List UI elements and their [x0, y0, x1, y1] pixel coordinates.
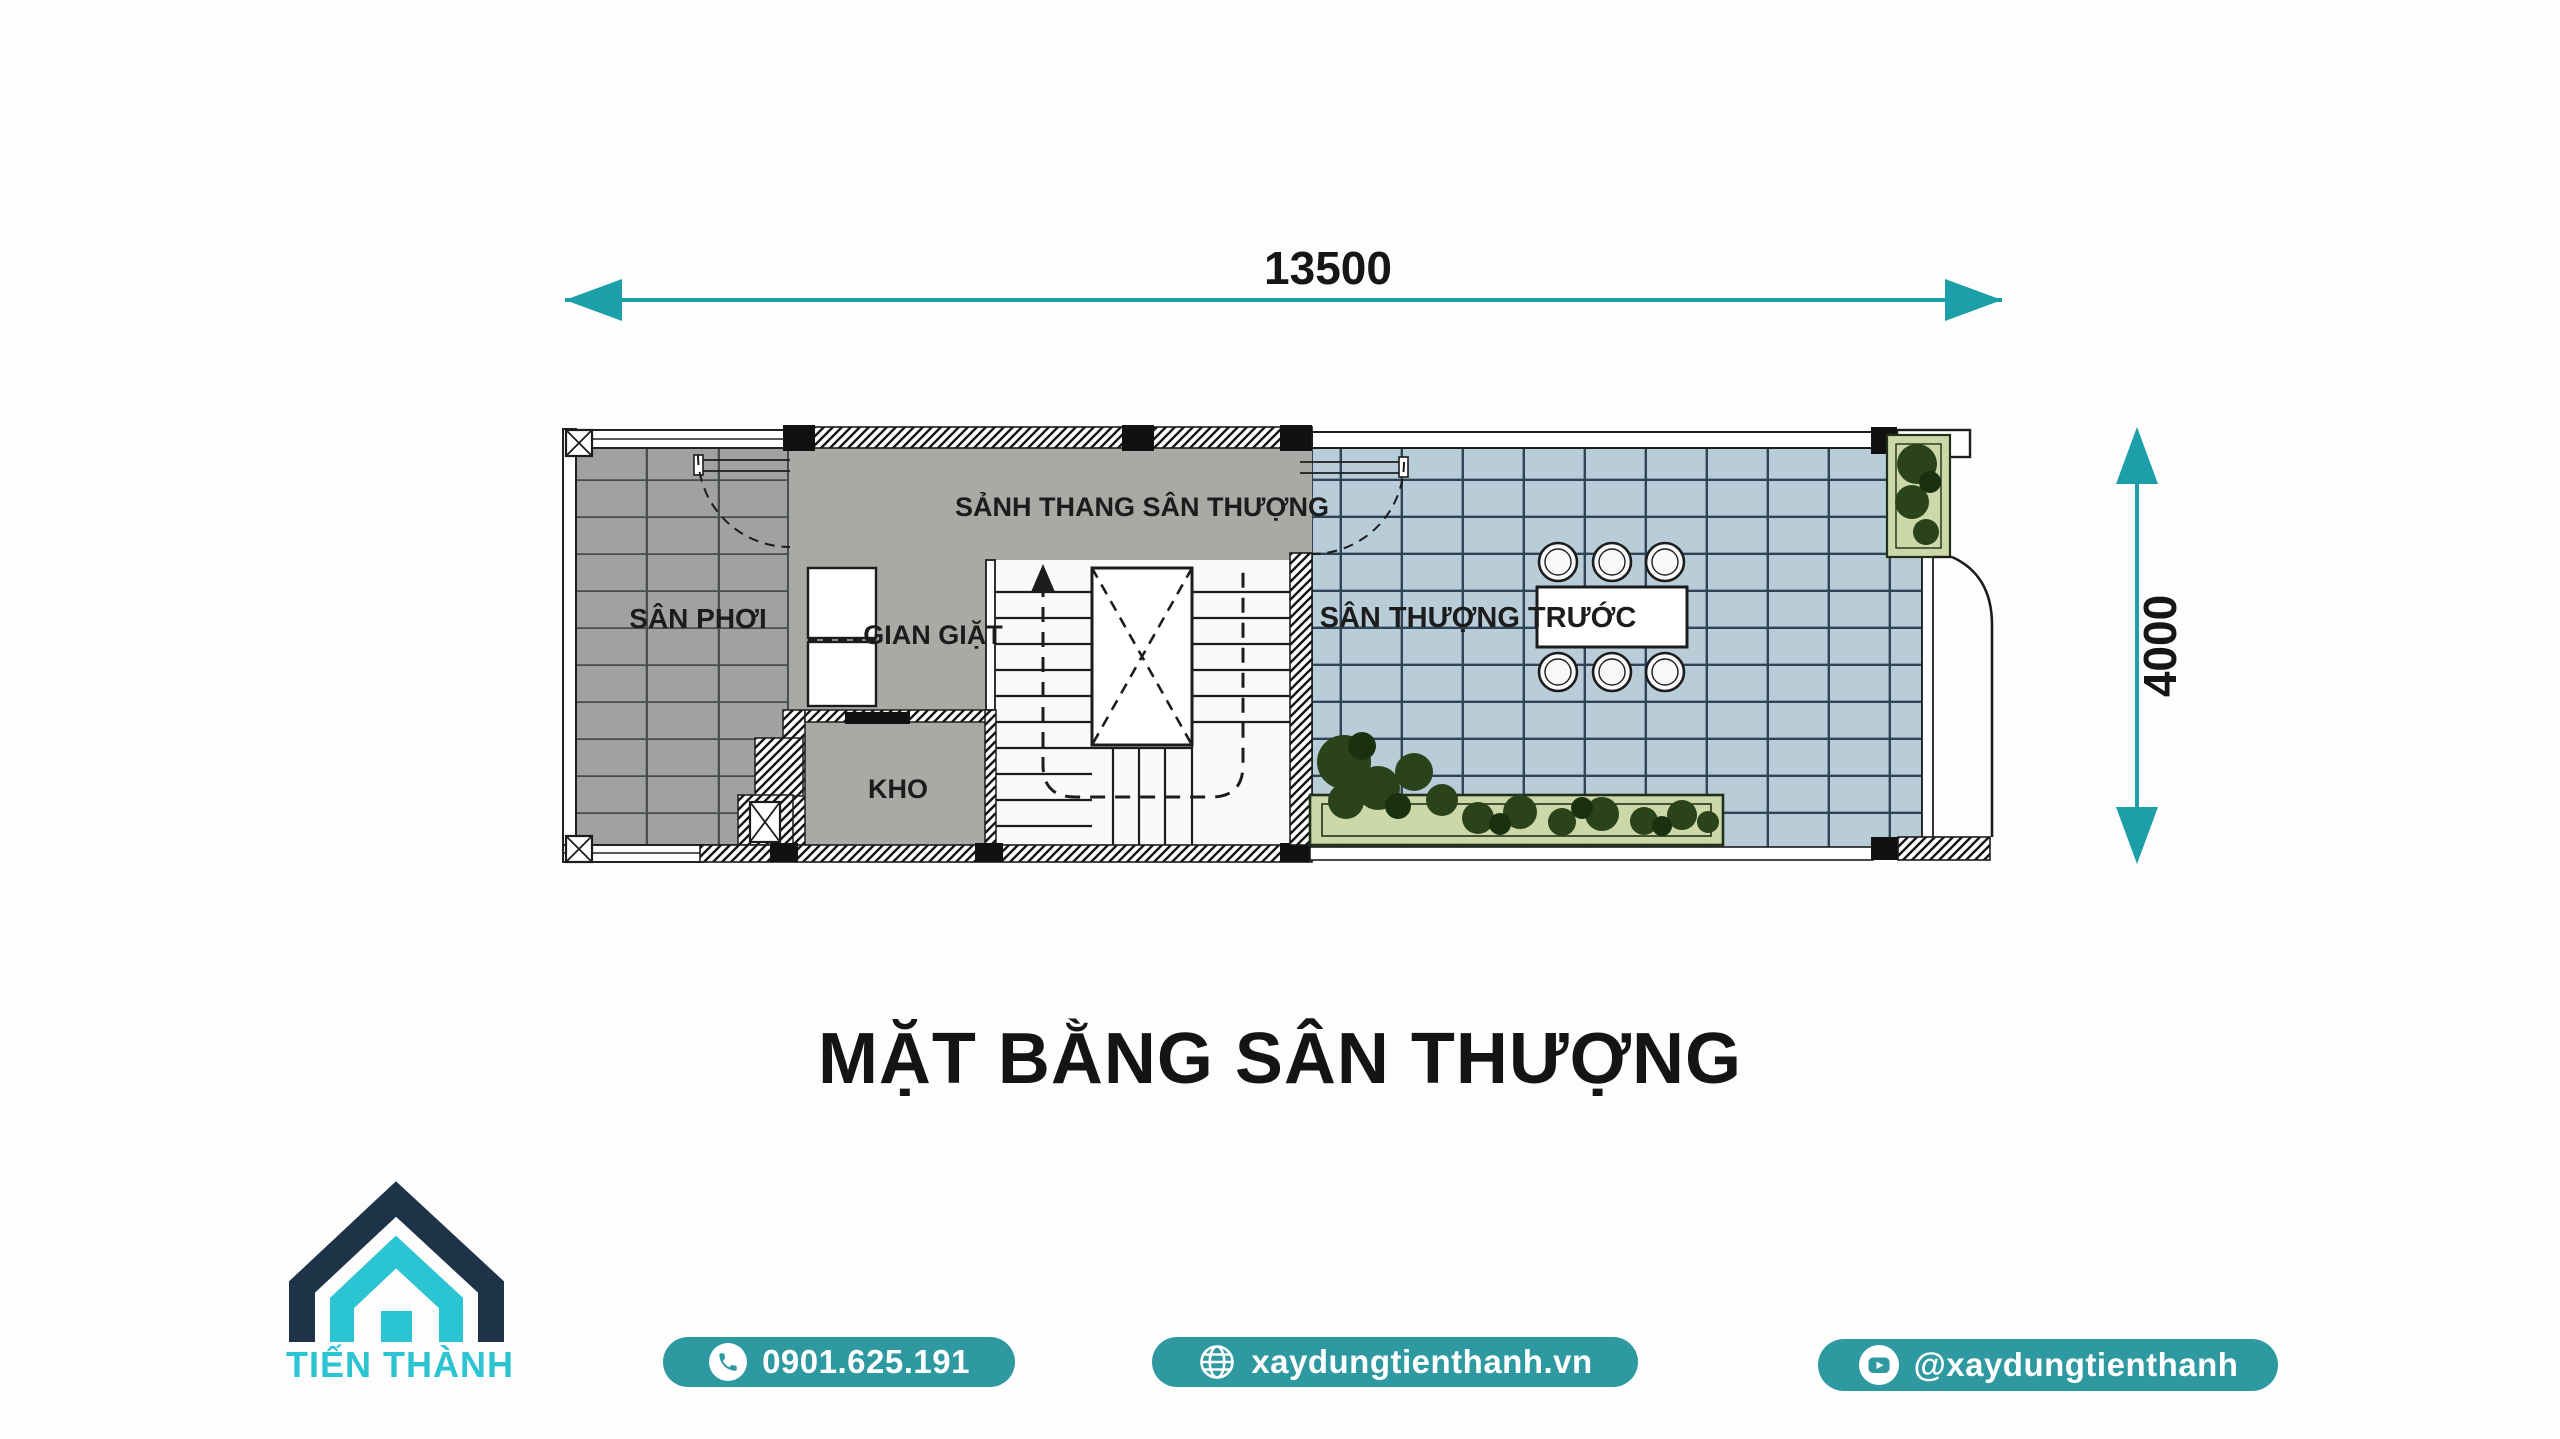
poster-canvas: SÂN PHƠI GIAN GIẶT KHO SẢNH THANG SÂN TH…: [0, 0, 2560, 1439]
floor-plan: SÂN PHƠI GIAN GIẶT KHO SẢNH THANG SÂN TH…: [540, 230, 2260, 940]
globe-icon: [1197, 1342, 1237, 1382]
phone-icon: [708, 1342, 748, 1382]
room-label-san-thuong-truoc: SÂN THƯỢNG TRƯỚC: [1320, 600, 1637, 634]
dimension-depth: 4000: [2116, 427, 2186, 864]
arrow-up-icon: [2116, 427, 2158, 484]
dimension-width: 13500: [565, 242, 2002, 321]
curved-facade-line: [1952, 557, 1992, 837]
arrow-down-icon: [2116, 807, 2158, 864]
social-handle: @xaydungtienthanh: [1914, 1346, 2239, 1384]
page-title: MẶT BẰNG SÂN THƯỢNG: [0, 1018, 2560, 1100]
arrow-right-icon: [1945, 279, 2002, 321]
stair-terrace-wall: [1290, 553, 1312, 845]
social-button[interactable]: @xaydungtienthanh: [1818, 1339, 2278, 1391]
arrow-left-icon: [565, 279, 622, 321]
company-logo: TIẾN THÀNH: [260, 1180, 540, 1410]
youtube-icon: [1858, 1344, 1900, 1386]
website-url: xaydungtienthanh.vn: [1251, 1343, 1592, 1381]
staircase: [986, 560, 1290, 845]
brand-name: TIẾN THÀNH: [260, 1344, 540, 1386]
room-label-sanh-thang: SẢNH THANG SÂN THƯỢNG: [955, 490, 1329, 522]
room-label-gian-giat: GIAN GIẶT: [863, 619, 1003, 650]
top-wall: [783, 425, 1312, 451]
phone-number: 0901.625.191: [762, 1343, 970, 1381]
elevator-shaft: [738, 795, 793, 845]
phone-button[interactable]: 0901.625.191: [663, 1337, 1015, 1387]
room-label-kho: KHO: [868, 774, 928, 804]
terrace-corner-planter: [1887, 435, 1950, 557]
dimension-width-label: 13500: [1264, 242, 1392, 294]
website-button[interactable]: xaydungtienthanh.vn: [1152, 1337, 1638, 1387]
dimension-depth-label: 4000: [2134, 595, 2186, 697]
room-label-san-phoi: SÂN PHƠI: [629, 603, 766, 634]
